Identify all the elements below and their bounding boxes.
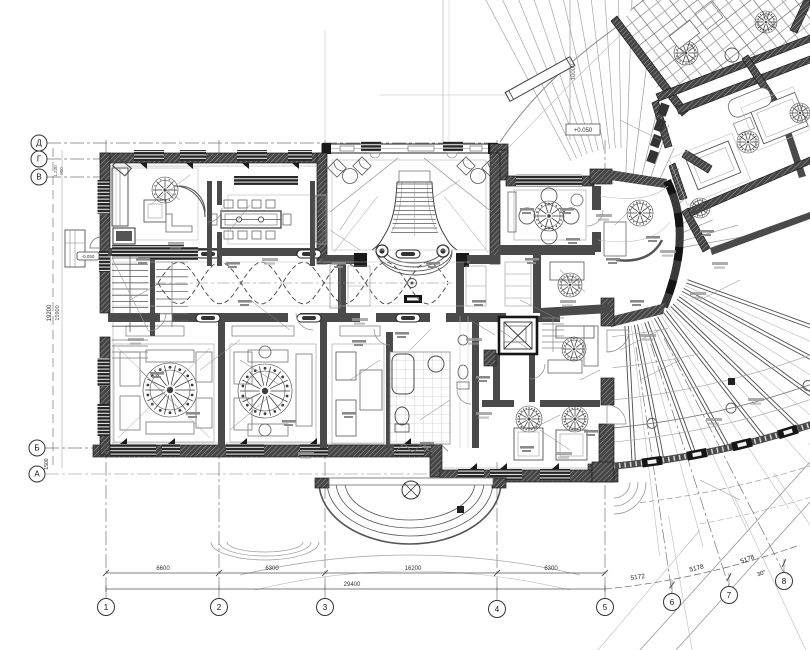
svg-text:3: 3 xyxy=(323,603,328,612)
svg-text:+0.050: +0.050 xyxy=(574,128,593,134)
svg-text:1.230: 1.230 xyxy=(53,165,58,177)
svg-text:8: 8 xyxy=(782,577,787,586)
svg-text:6600: 6600 xyxy=(156,566,170,572)
svg-text:Б: Б xyxy=(34,444,39,453)
svg-text:15900: 15900 xyxy=(55,305,61,320)
svg-text:6: 6 xyxy=(670,598,675,607)
svg-text:10000: 10000 xyxy=(571,63,577,80)
svg-text:5: 5 xyxy=(603,603,608,612)
svg-text:6300: 6300 xyxy=(265,566,279,572)
svg-text:1500: 1500 xyxy=(44,458,50,469)
svg-text:А: А xyxy=(34,470,40,479)
svg-text:1: 1 xyxy=(104,603,109,612)
svg-text:6300: 6300 xyxy=(544,566,558,572)
svg-text:7: 7 xyxy=(727,591,732,600)
svg-text:16200: 16200 xyxy=(405,566,422,572)
svg-text:2: 2 xyxy=(217,603,222,612)
svg-text:Г: Г xyxy=(37,155,42,164)
svg-text:В: В xyxy=(36,173,41,182)
svg-text:29400: 29400 xyxy=(344,582,361,588)
svg-text:Д: Д xyxy=(36,139,42,148)
svg-text:19200: 19200 xyxy=(47,304,53,321)
svg-text:4: 4 xyxy=(495,605,500,614)
svg-text:-0.050: -0.050 xyxy=(82,254,95,259)
svg-text:900: 900 xyxy=(59,167,64,175)
